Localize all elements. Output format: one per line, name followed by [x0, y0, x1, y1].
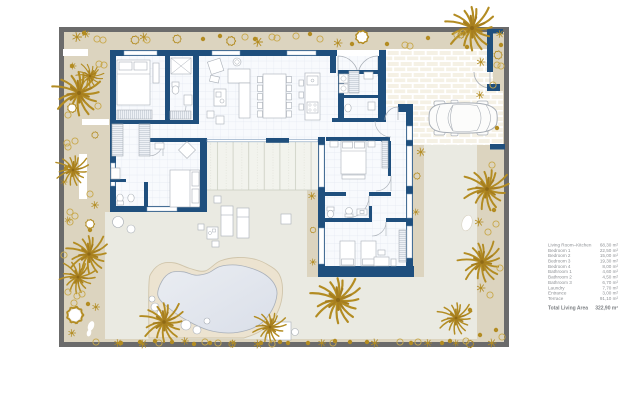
svg-text:Terrace: Terrace	[548, 296, 564, 301]
svg-text:91,10 m²: 91,10 m²	[600, 296, 619, 301]
svg-text:6,70 m²: 6,70 m²	[602, 280, 618, 285]
svg-text:3,00 m²: 3,00 m²	[602, 291, 618, 296]
svg-text:22,50 m²: 22,50 m²	[600, 248, 619, 253]
svg-text:4,50 m²: 4,50 m²	[602, 275, 618, 280]
svg-text:4,60 m²: 4,60 m²	[602, 269, 618, 274]
svg-text:Bathroom 1: Bathroom 1	[548, 269, 572, 274]
svg-text:322,90 m²: 322,90 m²	[595, 306, 618, 312]
svg-text:Entrance: Entrance	[548, 291, 567, 296]
svg-text:Bedroom 3: Bedroom 3	[548, 259, 571, 264]
svg-text:Bathroom 3: Bathroom 3	[548, 280, 572, 285]
svg-text:7,70 m²: 7,70 m²	[602, 285, 618, 290]
svg-text:Bedroom 1: Bedroom 1	[548, 248, 571, 253]
svg-text:Bedroom 2: Bedroom 2	[548, 253, 571, 258]
svg-text:68,30 m²: 68,30 m²	[600, 243, 619, 248]
svg-text:Total Living Area: Total Living Area	[548, 306, 588, 312]
svg-text:15,00 m²: 15,00 m²	[600, 253, 619, 258]
svg-text:8,00 m²: 8,00 m²	[602, 264, 618, 269]
svg-text:Laundry: Laundry	[548, 285, 565, 290]
svg-text:19,30 m²: 19,30 m²	[600, 259, 619, 264]
svg-text:Living Room–Kitchen: Living Room–Kitchen	[548, 243, 592, 248]
svg-text:Bathroom 2: Bathroom 2	[548, 275, 572, 280]
svg-text:Bedroom 4: Bedroom 4	[548, 264, 571, 269]
